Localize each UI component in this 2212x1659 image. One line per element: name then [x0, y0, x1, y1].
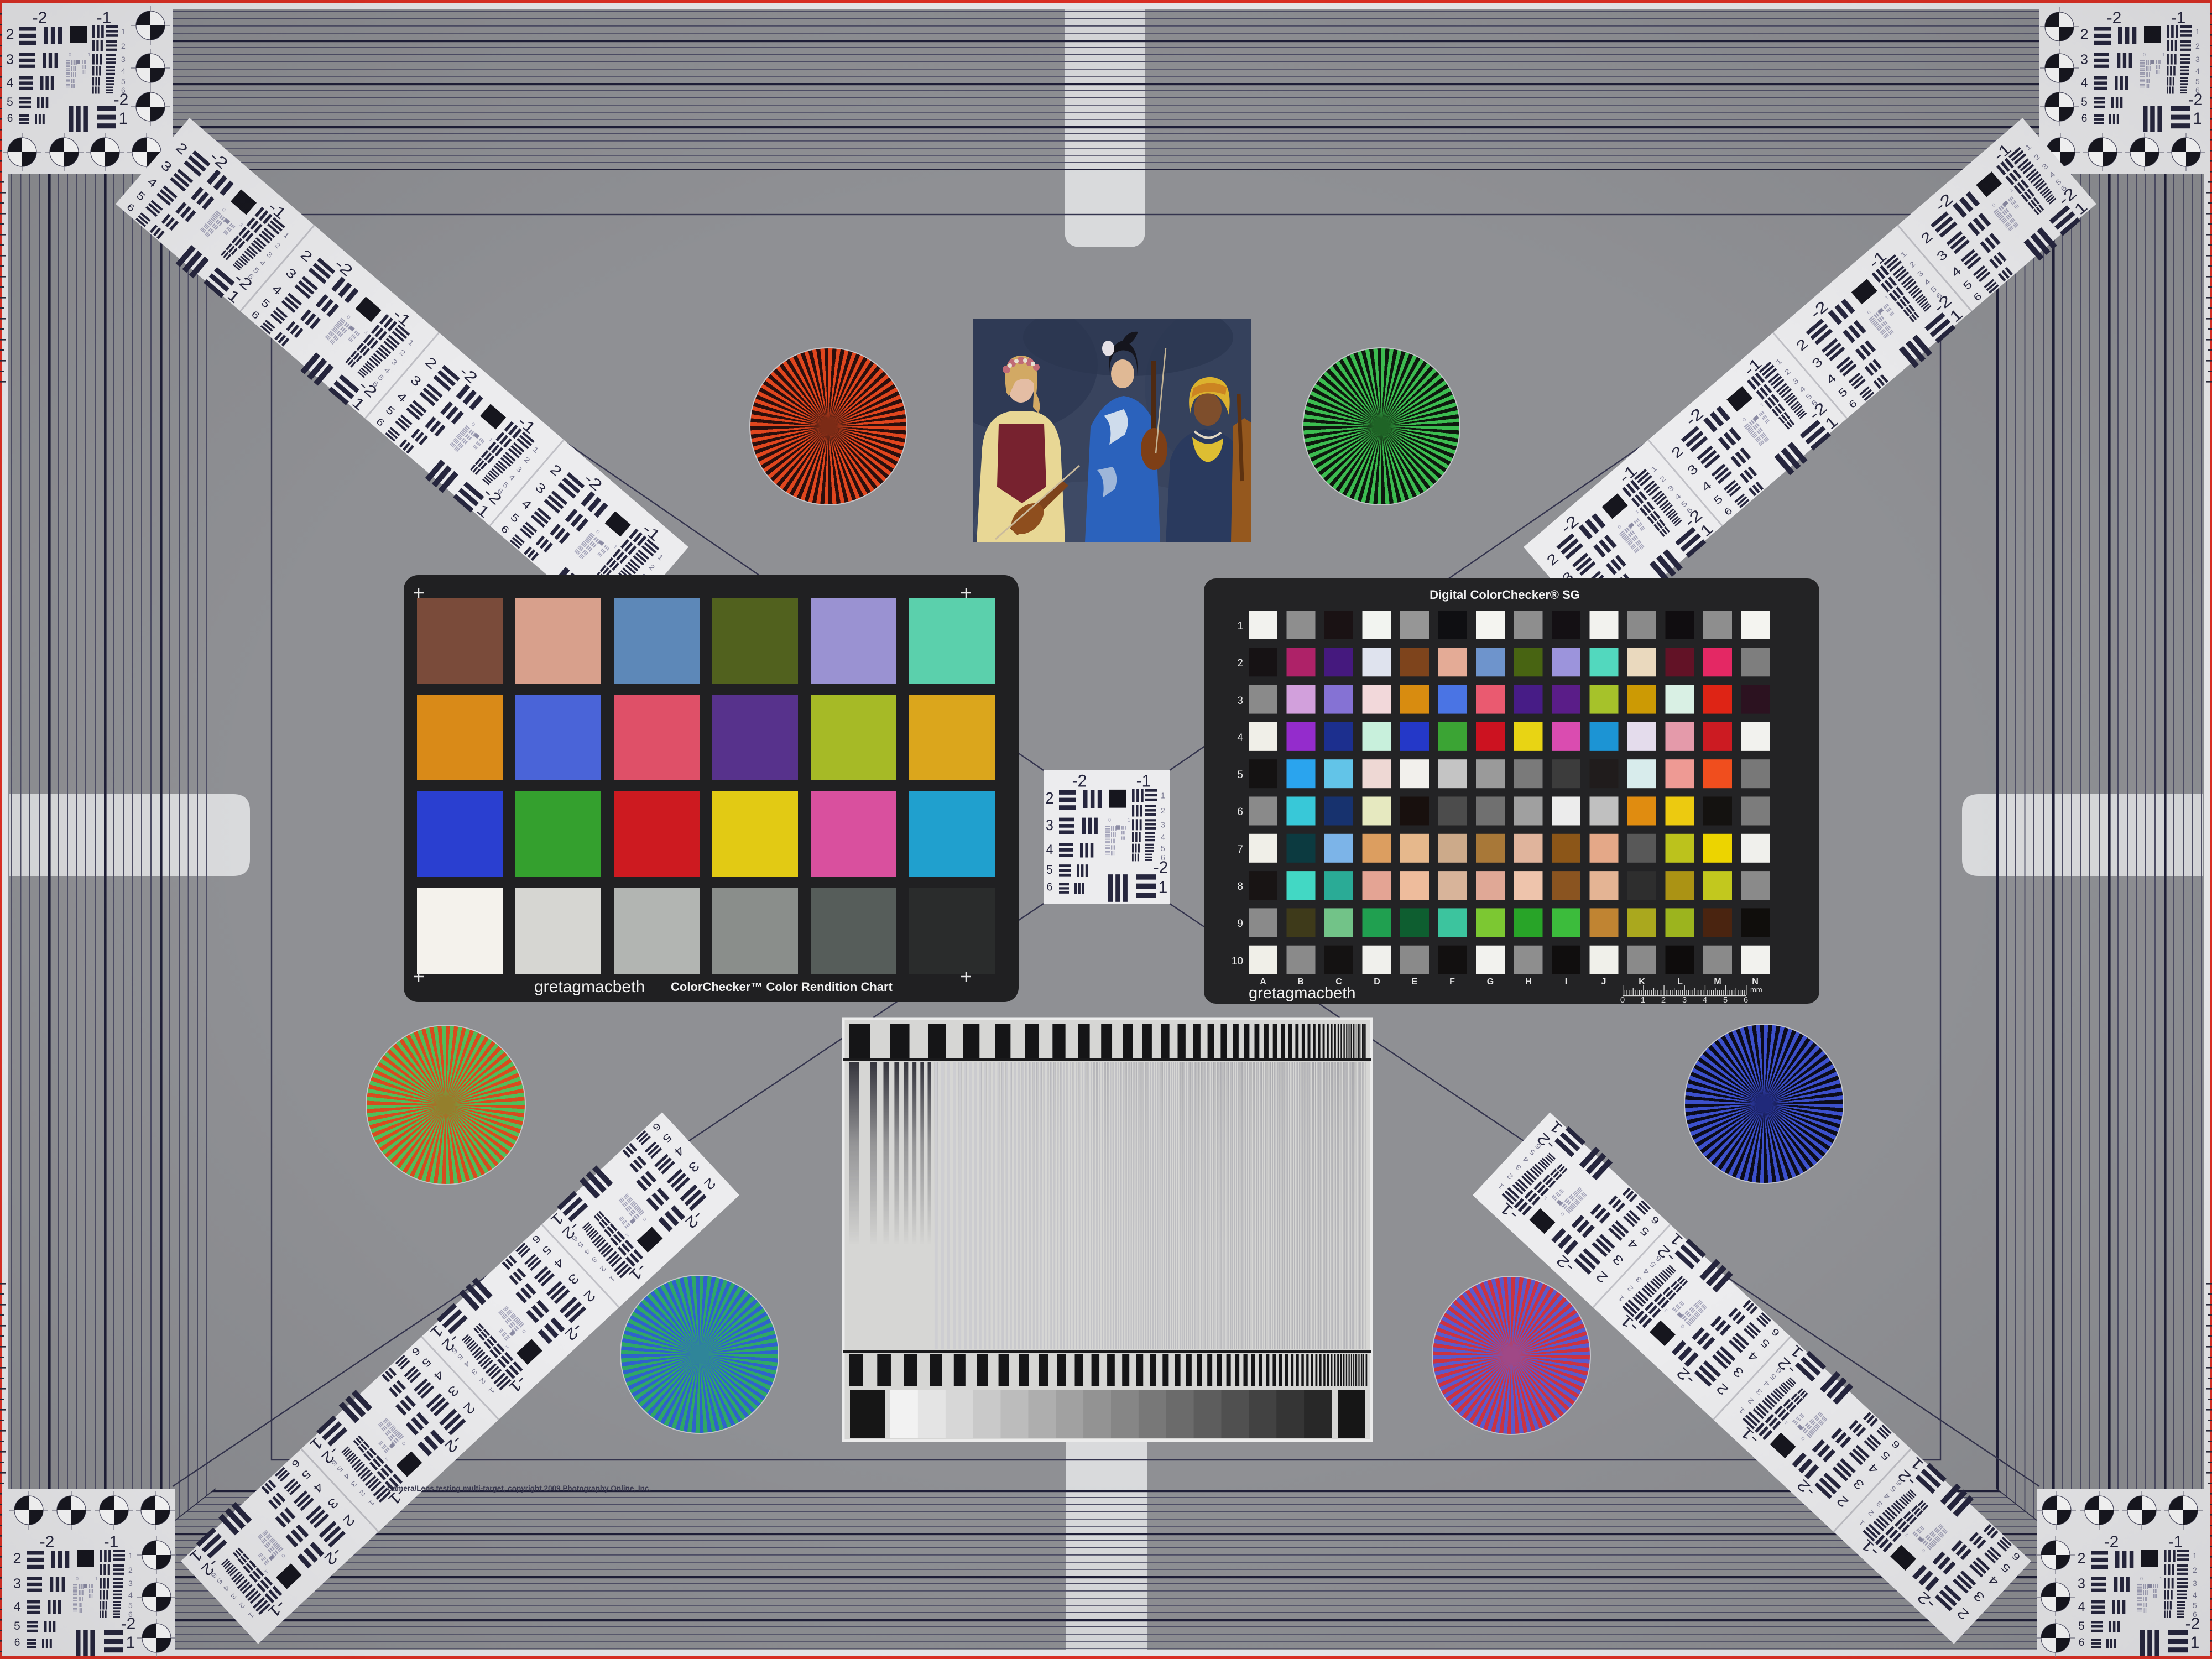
svg-text:5: 5 [1723, 995, 1728, 1005]
svg-text:F: F [1449, 977, 1455, 987]
svg-text:D: D [1374, 977, 1380, 987]
svg-text:E: E [1412, 977, 1418, 987]
svg-text:1: 1 [1641, 995, 1645, 1005]
svg-text:4: 4 [1237, 732, 1243, 744]
svg-text:2: 2 [1237, 658, 1243, 669]
svg-text:K: K [1639, 977, 1645, 987]
svg-text:M: M [1714, 977, 1721, 987]
svg-text:8: 8 [1237, 881, 1243, 893]
svg-text:10: 10 [1232, 956, 1243, 967]
svg-text:L: L [1677, 977, 1683, 987]
svg-text:ColorChecker™ Color Rendition: ColorChecker™ Color Rendition Chart [671, 980, 893, 994]
svg-text:G: G [1487, 977, 1494, 987]
svg-text:J: J [1601, 977, 1606, 987]
svg-text:3: 3 [1682, 995, 1687, 1005]
svg-text:0: 0 [1620, 995, 1625, 1005]
svg-text:4: 4 [1703, 995, 1707, 1005]
svg-text:I: I [1565, 977, 1567, 987]
svg-text:gretagmacbeth: gretagmacbeth [534, 978, 645, 996]
svg-text:gretagmacbeth: gretagmacbeth [1249, 984, 1355, 1002]
svg-text:6: 6 [1237, 806, 1243, 818]
svg-text:6: 6 [1744, 995, 1748, 1005]
svg-text:9: 9 [1237, 918, 1243, 930]
svg-text:7: 7 [1237, 844, 1243, 855]
svg-text:Digital ColorChecker® SG: Digital ColorChecker® SG [1430, 588, 1580, 602]
svg-text:3: 3 [1237, 695, 1243, 707]
svg-text:1: 1 [1237, 620, 1243, 632]
svg-text:Camera/Lens testing multi-targ: Camera/Lens testing multi-target, copyri… [387, 1484, 651, 1493]
svg-text:H: H [1525, 977, 1532, 987]
svg-text:mm: mm [1750, 985, 1762, 994]
svg-text:2: 2 [1661, 995, 1666, 1005]
svg-text:5: 5 [1237, 769, 1243, 781]
